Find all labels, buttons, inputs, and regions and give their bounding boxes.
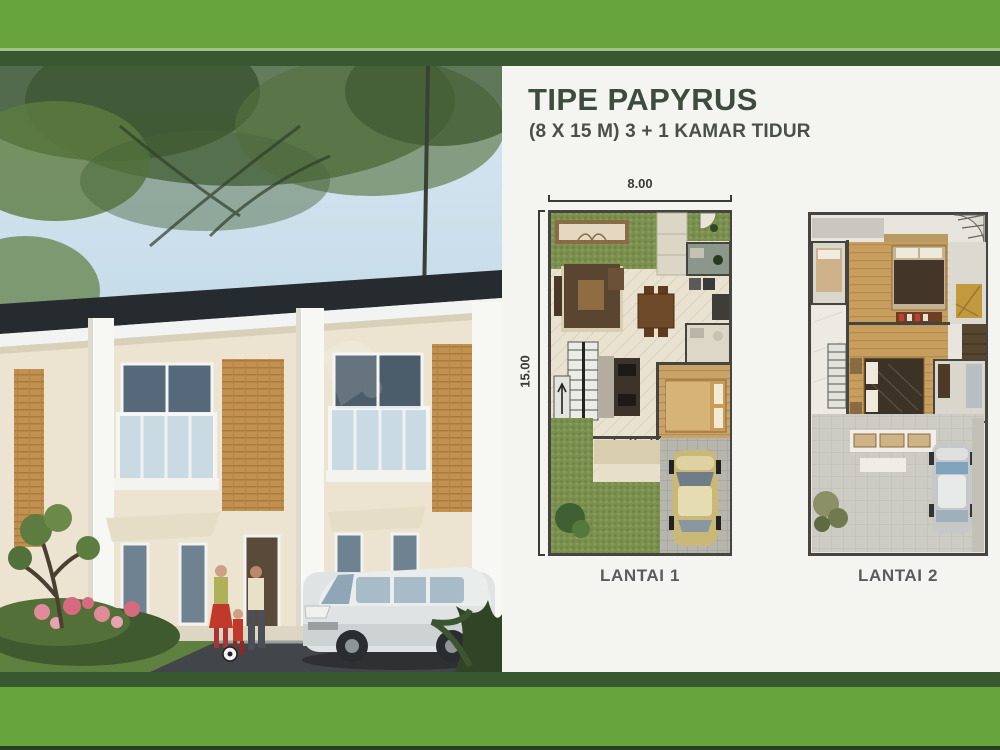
bottom-edge-line (0, 746, 1000, 750)
floorplan-lantai-2 (808, 212, 988, 556)
caption-lantai-1: LANTAI 1 (548, 566, 732, 586)
roof-ledge (812, 218, 884, 238)
brochure-page: TIPE PAPYRUS (8 X 15 M) 3 + 1 KAMAR TIDU… (0, 0, 1000, 750)
washer (689, 278, 701, 290)
floorplan-lantai-1 (548, 210, 732, 556)
living-room (554, 264, 624, 332)
side-walkway (972, 418, 984, 552)
width-dimension-line (548, 195, 732, 202)
balcony (114, 414, 219, 490)
car-silver (929, 442, 975, 534)
terrace (594, 440, 660, 464)
bottom-dark-green-strip (0, 672, 1000, 687)
top-dark-green-strip (0, 51, 1000, 66)
stairs-upper (828, 344, 846, 408)
width-dimension-label: 8.00 (548, 176, 732, 191)
maid-room (812, 242, 846, 304)
top-green-band (0, 0, 1000, 48)
bedroom (656, 362, 730, 441)
wood-panel (432, 344, 472, 512)
bedroom-2 (848, 242, 948, 324)
property-photo (0, 66, 502, 672)
height-dimension-label: 15.00 (518, 342, 533, 402)
foyer (657, 213, 687, 275)
car-gold (669, 450, 721, 546)
caption-lantai-2: LANTAI 2 (808, 566, 988, 586)
bathroom (687, 243, 730, 275)
upper-bathroom (934, 360, 986, 422)
height-dimension-line (538, 210, 545, 556)
balcony-rail (850, 430, 936, 452)
ground-window (180, 544, 206, 624)
floorplan-panel: TIPE PAPYRUS (8 X 15 M) 3 + 1 KAMAR TIDU… (502, 66, 1000, 672)
plan-type-subtitle: (8 X 15 M) 3 + 1 KAMAR TIDUR (529, 121, 811, 143)
plan-type-title: TIPE PAPYRUS (528, 82, 758, 118)
kitchen-counter (712, 294, 729, 320)
bottom-green-band (0, 687, 1000, 750)
kitchen (598, 356, 614, 418)
wood-panel (222, 359, 284, 511)
balcony (326, 408, 432, 482)
